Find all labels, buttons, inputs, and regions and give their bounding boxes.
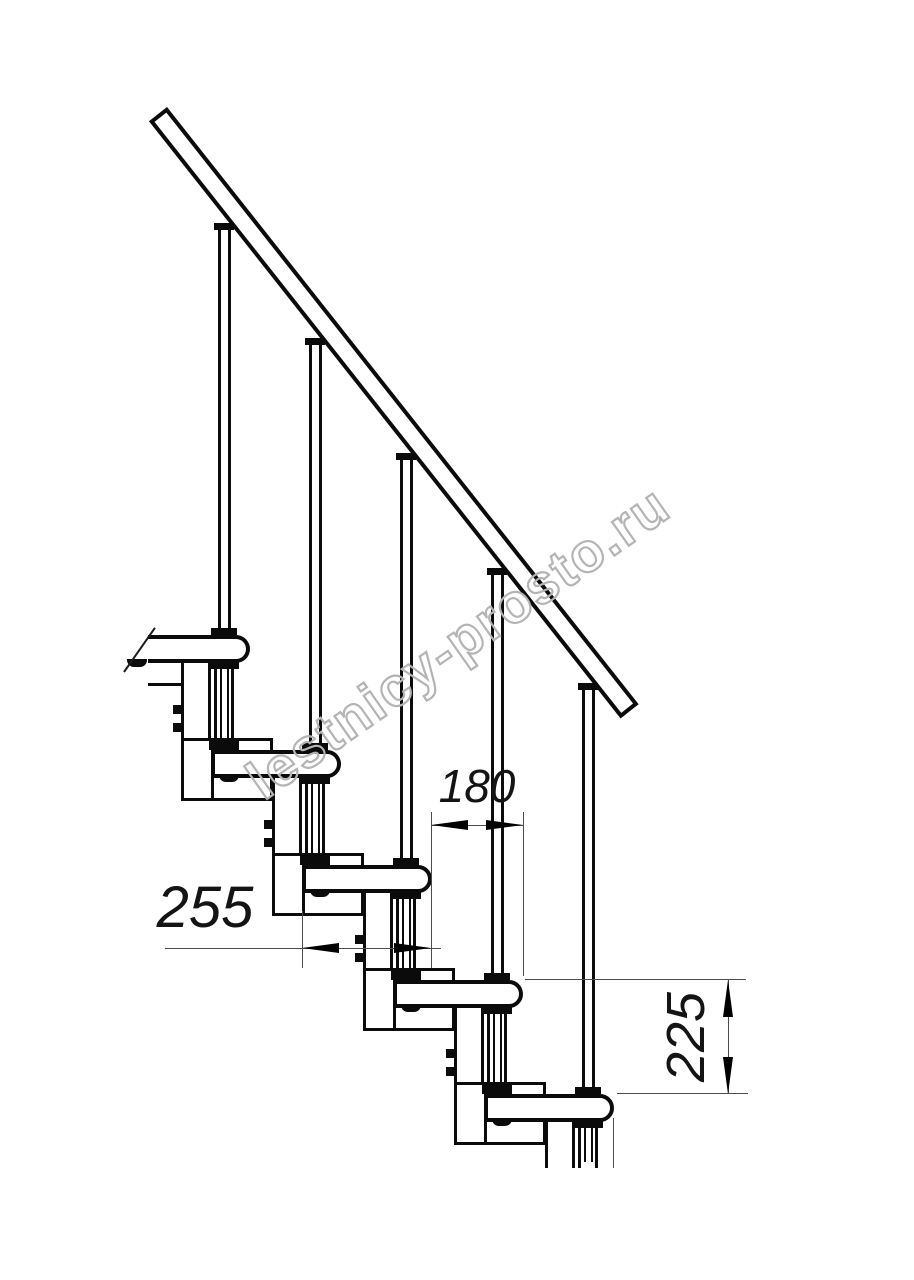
baluster-rail-flange	[214, 223, 234, 230]
dimension-arrow	[723, 980, 733, 1017]
baluster-base-flange	[575, 1087, 601, 1094]
baluster-base-flange	[484, 973, 510, 980]
riser-bottom-flange	[482, 1082, 512, 1094]
riser-top-flange	[209, 659, 239, 669]
riser-bottom-flange	[209, 738, 239, 750]
dimension-run-label: 180	[439, 763, 516, 809]
riser-bottom-flange	[391, 968, 421, 980]
riser-post-inner	[311, 780, 313, 859]
riser-bottom-flange	[300, 853, 330, 865]
riser-top-flange	[391, 889, 421, 899]
extension-line	[431, 812, 432, 968]
riser-top-flange	[482, 1004, 512, 1014]
extension-line	[302, 911, 303, 968]
support-bracket	[363, 889, 393, 968]
riser-post-inner	[227, 665, 229, 744]
bolt-tab	[446, 1067, 456, 1076]
riser-post-inner	[500, 1010, 502, 1088]
baluster	[309, 344, 322, 750]
dimension-arrow	[431, 820, 468, 830]
bolt-tab	[264, 838, 274, 847]
riser-post-inner	[318, 780, 320, 859]
staircase-drawing: 180 255 225 lestnicy-prosto.ru	[0, 0, 914, 1280]
dimension-arrow	[723, 1057, 733, 1094]
baluster	[582, 689, 595, 1094]
support-bracket	[545, 1118, 575, 1168]
dimension-arrow	[394, 943, 431, 953]
baluster-base-flange	[393, 858, 419, 865]
bolt-tab	[446, 1049, 456, 1058]
baluster-rail-flange	[305, 338, 325, 345]
riser-post-inner	[591, 1124, 593, 1162]
dimension-depth-label: 255	[157, 879, 254, 937]
bolt-tab	[355, 953, 365, 962]
bolt-tab	[173, 723, 183, 732]
baluster	[218, 229, 231, 635]
baluster-rail-flange	[396, 453, 416, 460]
baluster-base-flange	[211, 628, 237, 635]
dimension-rise-label: 225	[659, 992, 713, 1082]
riser-post-inner	[493, 1010, 495, 1088]
bolt-tab	[264, 820, 274, 829]
riser-post-inner	[402, 895, 404, 974]
riser-post	[214, 659, 234, 750]
extension-line	[525, 979, 746, 980]
bolt-tab	[355, 935, 365, 944]
riser-post-inner	[220, 665, 222, 744]
riser-post-inner	[584, 1124, 586, 1162]
support-bracket	[181, 659, 211, 738]
cut-edge-line	[613, 1118, 614, 1168]
clamp-seam	[211, 774, 214, 801]
dimension-arrow	[486, 820, 523, 830]
riser-post	[305, 774, 325, 865]
riser-top-flange	[573, 1118, 603, 1128]
riser-post-inner	[409, 895, 411, 974]
clamp-stub	[148, 683, 181, 686]
baluster-rail-flange	[578, 683, 598, 690]
riser-post	[396, 889, 416, 980]
extension-line	[523, 812, 524, 976]
riser-post	[487, 1004, 507, 1094]
support-bracket	[454, 1004, 484, 1082]
bolt-tab	[173, 705, 183, 714]
clamp-seam	[484, 1118, 487, 1145]
clamp-seam	[393, 1004, 396, 1031]
dimension-arrow	[302, 943, 339, 953]
